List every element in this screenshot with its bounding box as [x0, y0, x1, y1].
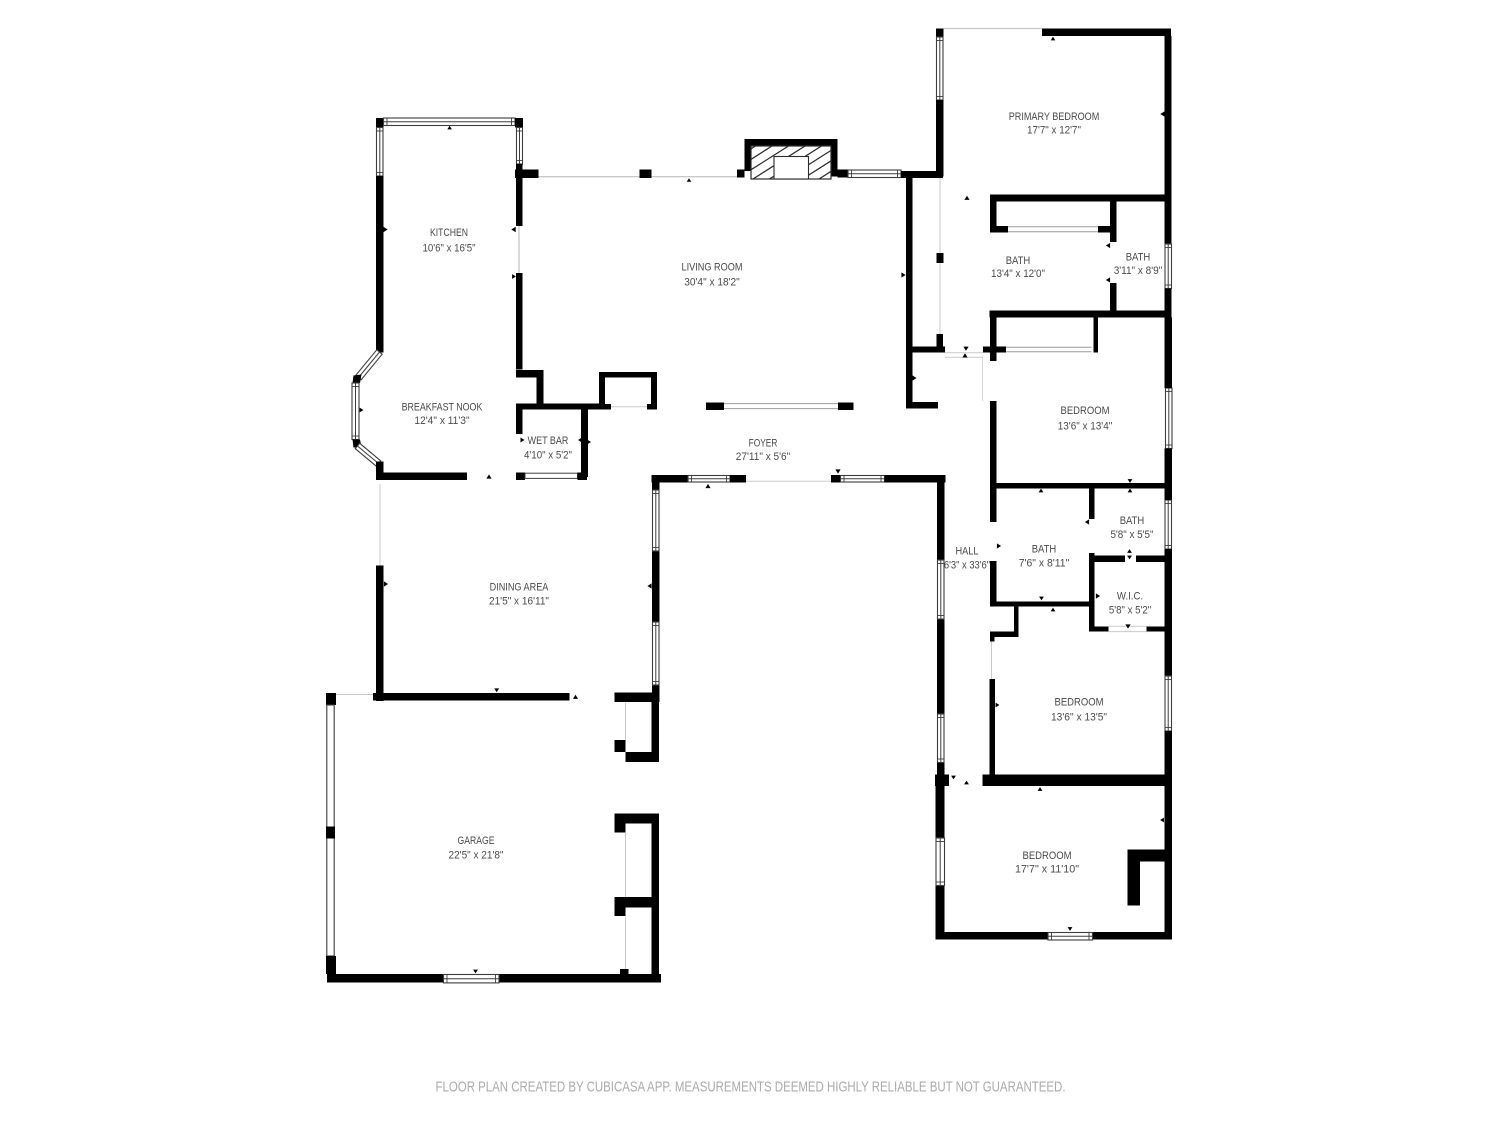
- svg-text:FLOOR PLAN CREATED BY CUBICASA: FLOOR PLAN CREATED BY CUBICASA APP. MEAS…: [436, 1080, 1066, 1096]
- svg-text:FOYER: FOYER: [749, 437, 778, 449]
- svg-text:BEDROOM: BEDROOM: [1061, 405, 1110, 417]
- svg-text:5'8" x 5'2": 5'8" x 5'2": [1109, 604, 1151, 616]
- svg-text:5'8" x 5'5": 5'8" x 5'5": [1110, 529, 1153, 541]
- svg-text:HALL: HALL: [956, 545, 979, 557]
- svg-text:13'4" x 12'0": 13'4" x 12'0": [991, 268, 1045, 280]
- svg-text:PRIMARY BEDROOM: PRIMARY BEDROOM: [1009, 111, 1100, 123]
- svg-text:BEDROOM: BEDROOM: [1055, 696, 1104, 708]
- svg-text:17'7" x 12'7": 17'7" x 12'7": [1027, 124, 1081, 136]
- svg-text:BREAKFAST NOOK: BREAKFAST NOOK: [402, 401, 483, 413]
- svg-text:7'6" x 8'11": 7'6" x 8'11": [1019, 557, 1070, 569]
- svg-text:3'11" x 8'9": 3'11" x 8'9": [1114, 265, 1163, 277]
- svg-text:27'11" x 5'6": 27'11" x 5'6": [736, 451, 791, 463]
- svg-text:W.I.C.: W.I.C.: [1117, 590, 1143, 602]
- svg-text:6'3" x 33'6": 6'3" x 33'6": [944, 559, 990, 571]
- svg-text:13'6" x 13'4": 13'6" x 13'4": [1058, 420, 1113, 432]
- svg-text:10'6" x 16'5": 10'6" x 16'5": [423, 242, 476, 254]
- svg-text:BATH: BATH: [1120, 515, 1145, 527]
- svg-text:22'5" x 21'8": 22'5" x 21'8": [449, 849, 504, 861]
- svg-text:DINING AREA: DINING AREA: [490, 581, 549, 593]
- svg-text:30'4" x 18'2": 30'4" x 18'2": [684, 276, 740, 288]
- svg-text:BATH: BATH: [1006, 255, 1031, 267]
- svg-text:KITCHEN: KITCHEN: [430, 227, 468, 239]
- svg-text:LIVING ROOM: LIVING ROOM: [682, 261, 743, 273]
- svg-text:GARAGE: GARAGE: [458, 835, 495, 847]
- svg-text:BEDROOM: BEDROOM: [1023, 850, 1072, 862]
- svg-text:4'10" x 5'2": 4'10" x 5'2": [524, 449, 572, 461]
- svg-text:17'7" x 11'10": 17'7" x 11'10": [1015, 863, 1079, 875]
- svg-text:12'4" x 11'3": 12'4" x 11'3": [414, 415, 469, 427]
- svg-text:21'5" x 16'11": 21'5" x 16'11": [489, 595, 549, 607]
- svg-text:WET BAR: WET BAR: [528, 435, 569, 447]
- svg-text:BATH: BATH: [1032, 543, 1057, 555]
- svg-text:13'6" x 13'5": 13'6" x 13'5": [1051, 711, 1107, 723]
- svg-text:BATH: BATH: [1126, 251, 1151, 263]
